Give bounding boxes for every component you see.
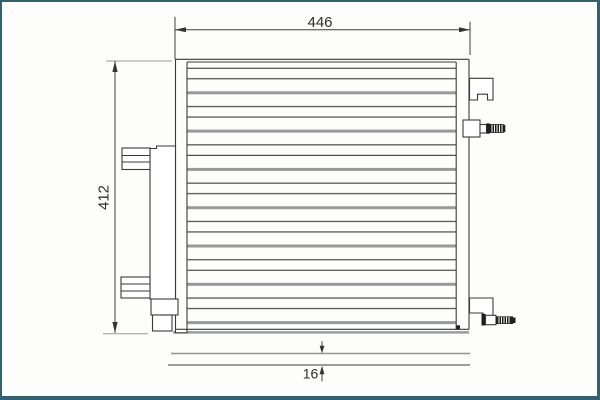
side-profile-view — [168, 354, 470, 366]
core-bottom-band — [173, 331, 469, 333]
left-tank-foot — [176, 329, 188, 333]
dim-depth-arrow-down — [320, 346, 325, 354]
dim-height-label: 412 — [96, 185, 113, 210]
dim-height-arrow-bottom — [112, 322, 117, 333]
receiver-drier-body — [150, 146, 176, 299]
dim-depth-label: 16 — [303, 366, 319, 382]
core-fins — [188, 62, 457, 330]
mounting-tab-lower — [121, 277, 150, 298]
dim-height-arrow-top — [112, 61, 117, 72]
dim-width-arrow-left — [175, 27, 186, 32]
outlet-fitting — [482, 314, 516, 326]
right-tank — [456, 59, 469, 330]
dimension-width: 446 — [175, 14, 470, 59]
dimension-depth: 16 — [303, 341, 325, 381]
drier-bottom-block — [151, 299, 178, 315]
drawing-frame: 446 412 16 — [0, 0, 600, 400]
condenser-core — [173, 59, 469, 333]
dim-depth-arrow-up — [320, 366, 325, 375]
bracket-top-right — [470, 78, 494, 100]
inlet-fitting — [463, 120, 505, 137]
left-tank — [176, 59, 188, 333]
condenser-drawing: 446 412 16 — [0, 0, 600, 400]
right-side-attachments — [463, 78, 516, 325]
dim-width-label: 446 — [307, 14, 332, 31]
dim-width-arrow-right — [459, 27, 470, 32]
receiver-drier-assembly — [121, 146, 178, 331]
mounting-tab-upper — [122, 148, 150, 170]
right-tank-foot — [457, 325, 461, 329]
drier-bottom-fitting — [153, 315, 173, 331]
